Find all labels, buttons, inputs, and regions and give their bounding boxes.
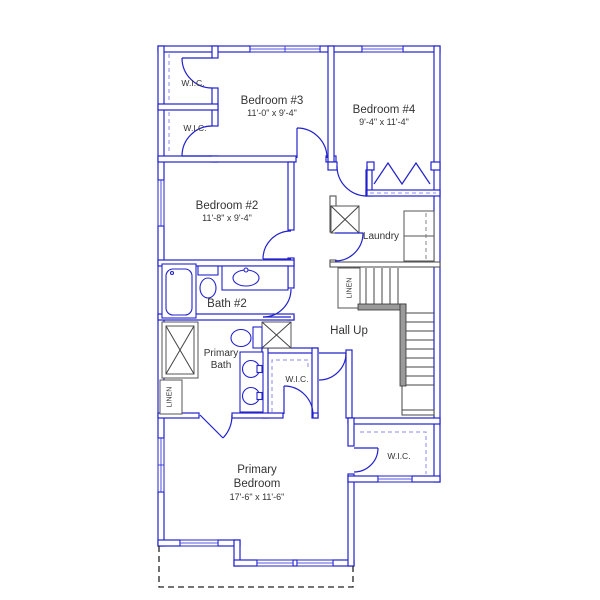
washer-dryer-symbol — [404, 211, 434, 261]
bedroom3-name: Bedroom #3 — [241, 95, 304, 107]
window — [180, 540, 218, 546]
window — [362, 46, 403, 52]
wall-segment — [158, 46, 250, 52]
laundry-label: Laundry — [363, 231, 399, 242]
wall-segment — [312, 348, 318, 418]
floor-plan-drawing: W.I.C. W.I.C. Bedroom #3 11'-0" x 9'-4" … — [0, 0, 600, 600]
primary-bedroom-dims: 17'-6" x 11'-6" — [230, 492, 285, 502]
wall-segment — [158, 104, 218, 110]
linen-bath-label: LINEN — [167, 387, 174, 408]
door-arc — [263, 289, 291, 317]
primary-bath-label-2: Bath — [211, 360, 232, 371]
wall-segment — [288, 162, 294, 230]
wall-segment — [348, 418, 440, 424]
stairs — [358, 268, 434, 415]
wall-segment — [431, 162, 440, 170]
wall-segment — [313, 413, 318, 418]
hall-up-label: Hall Up — [330, 325, 368, 337]
window — [378, 476, 412, 482]
floor-plan-canvas: W.I.C. W.I.C. Bedroom #3 11'-0" x 9'-4" … — [0, 0, 600, 600]
wall-segment — [348, 474, 354, 566]
window — [297, 560, 333, 566]
primary-bath-label-1: Primary — [204, 348, 238, 359]
wic-mid-label: W.I.C. — [285, 374, 308, 384]
wall-segment — [328, 162, 337, 170]
wall-segment — [412, 476, 440, 482]
wall-segment — [293, 560, 297, 566]
door-arc — [263, 231, 291, 259]
wall-segment — [232, 413, 283, 418]
wall-segment — [330, 262, 440, 267]
bifold-door — [374, 163, 430, 184]
door-arc — [297, 128, 327, 158]
window — [257, 560, 293, 566]
wall-segment — [328, 46, 334, 162]
window — [250, 46, 320, 52]
primary-bedroom-name-1: Primary — [237, 464, 277, 476]
bedroom4-name: Bedroom #4 — [353, 104, 416, 116]
wall-segment — [158, 156, 296, 162]
door-arc — [284, 386, 313, 415]
wall-segment — [158, 540, 180, 546]
door-arc — [337, 166, 367, 196]
bedroom3-dims: 11'-0" x 9'-4" — [247, 108, 297, 118]
chase-box — [331, 206, 359, 233]
wic1-label: W.I.C. — [181, 78, 204, 88]
toilet-symbol — [198, 266, 218, 298]
window — [158, 438, 164, 492]
double-sink-vanity-symbol — [240, 352, 263, 412]
window — [158, 180, 164, 226]
door-arc — [354, 448, 378, 472]
door-arc-angled — [200, 415, 232, 438]
laundry-door — [335, 233, 363, 261]
bedroom4-dims: 9'-4" x 11'-4" — [359, 117, 409, 127]
bathtub-symbol — [162, 264, 196, 318]
sink-vanity-symbol — [222, 266, 288, 290]
wall-segment — [367, 162, 374, 170]
door-arc — [319, 353, 346, 380]
wall-segment — [212, 46, 218, 58]
wall-segment — [234, 560, 257, 566]
bedroom2-dims: 11'-8" x 9'-4" — [202, 213, 252, 223]
wall-segment — [320, 46, 362, 52]
wall-segment — [158, 492, 164, 546]
wic-bottom-right-label: W.I.C. — [387, 451, 410, 461]
wall-segment — [402, 410, 434, 415]
wic2-label: W.I.C. — [183, 123, 206, 133]
bath2-label: Bath #2 — [207, 298, 247, 310]
bedroom2-name: Bedroom #2 — [196, 200, 259, 212]
wall-segment — [346, 350, 352, 418]
linen-hall-label: LINEN — [347, 278, 354, 299]
wall-segment — [348, 476, 378, 482]
chase-box — [262, 322, 291, 348]
stair-wall-hatched — [358, 304, 406, 310]
wall-segment — [348, 418, 354, 446]
stair-wall-hatched — [400, 304, 406, 386]
primary-bedroom-name-2: Bedroom — [234, 478, 281, 490]
wall-segment — [262, 348, 318, 353]
shower-symbol — [162, 322, 198, 378]
toilet-symbol — [231, 327, 262, 348]
